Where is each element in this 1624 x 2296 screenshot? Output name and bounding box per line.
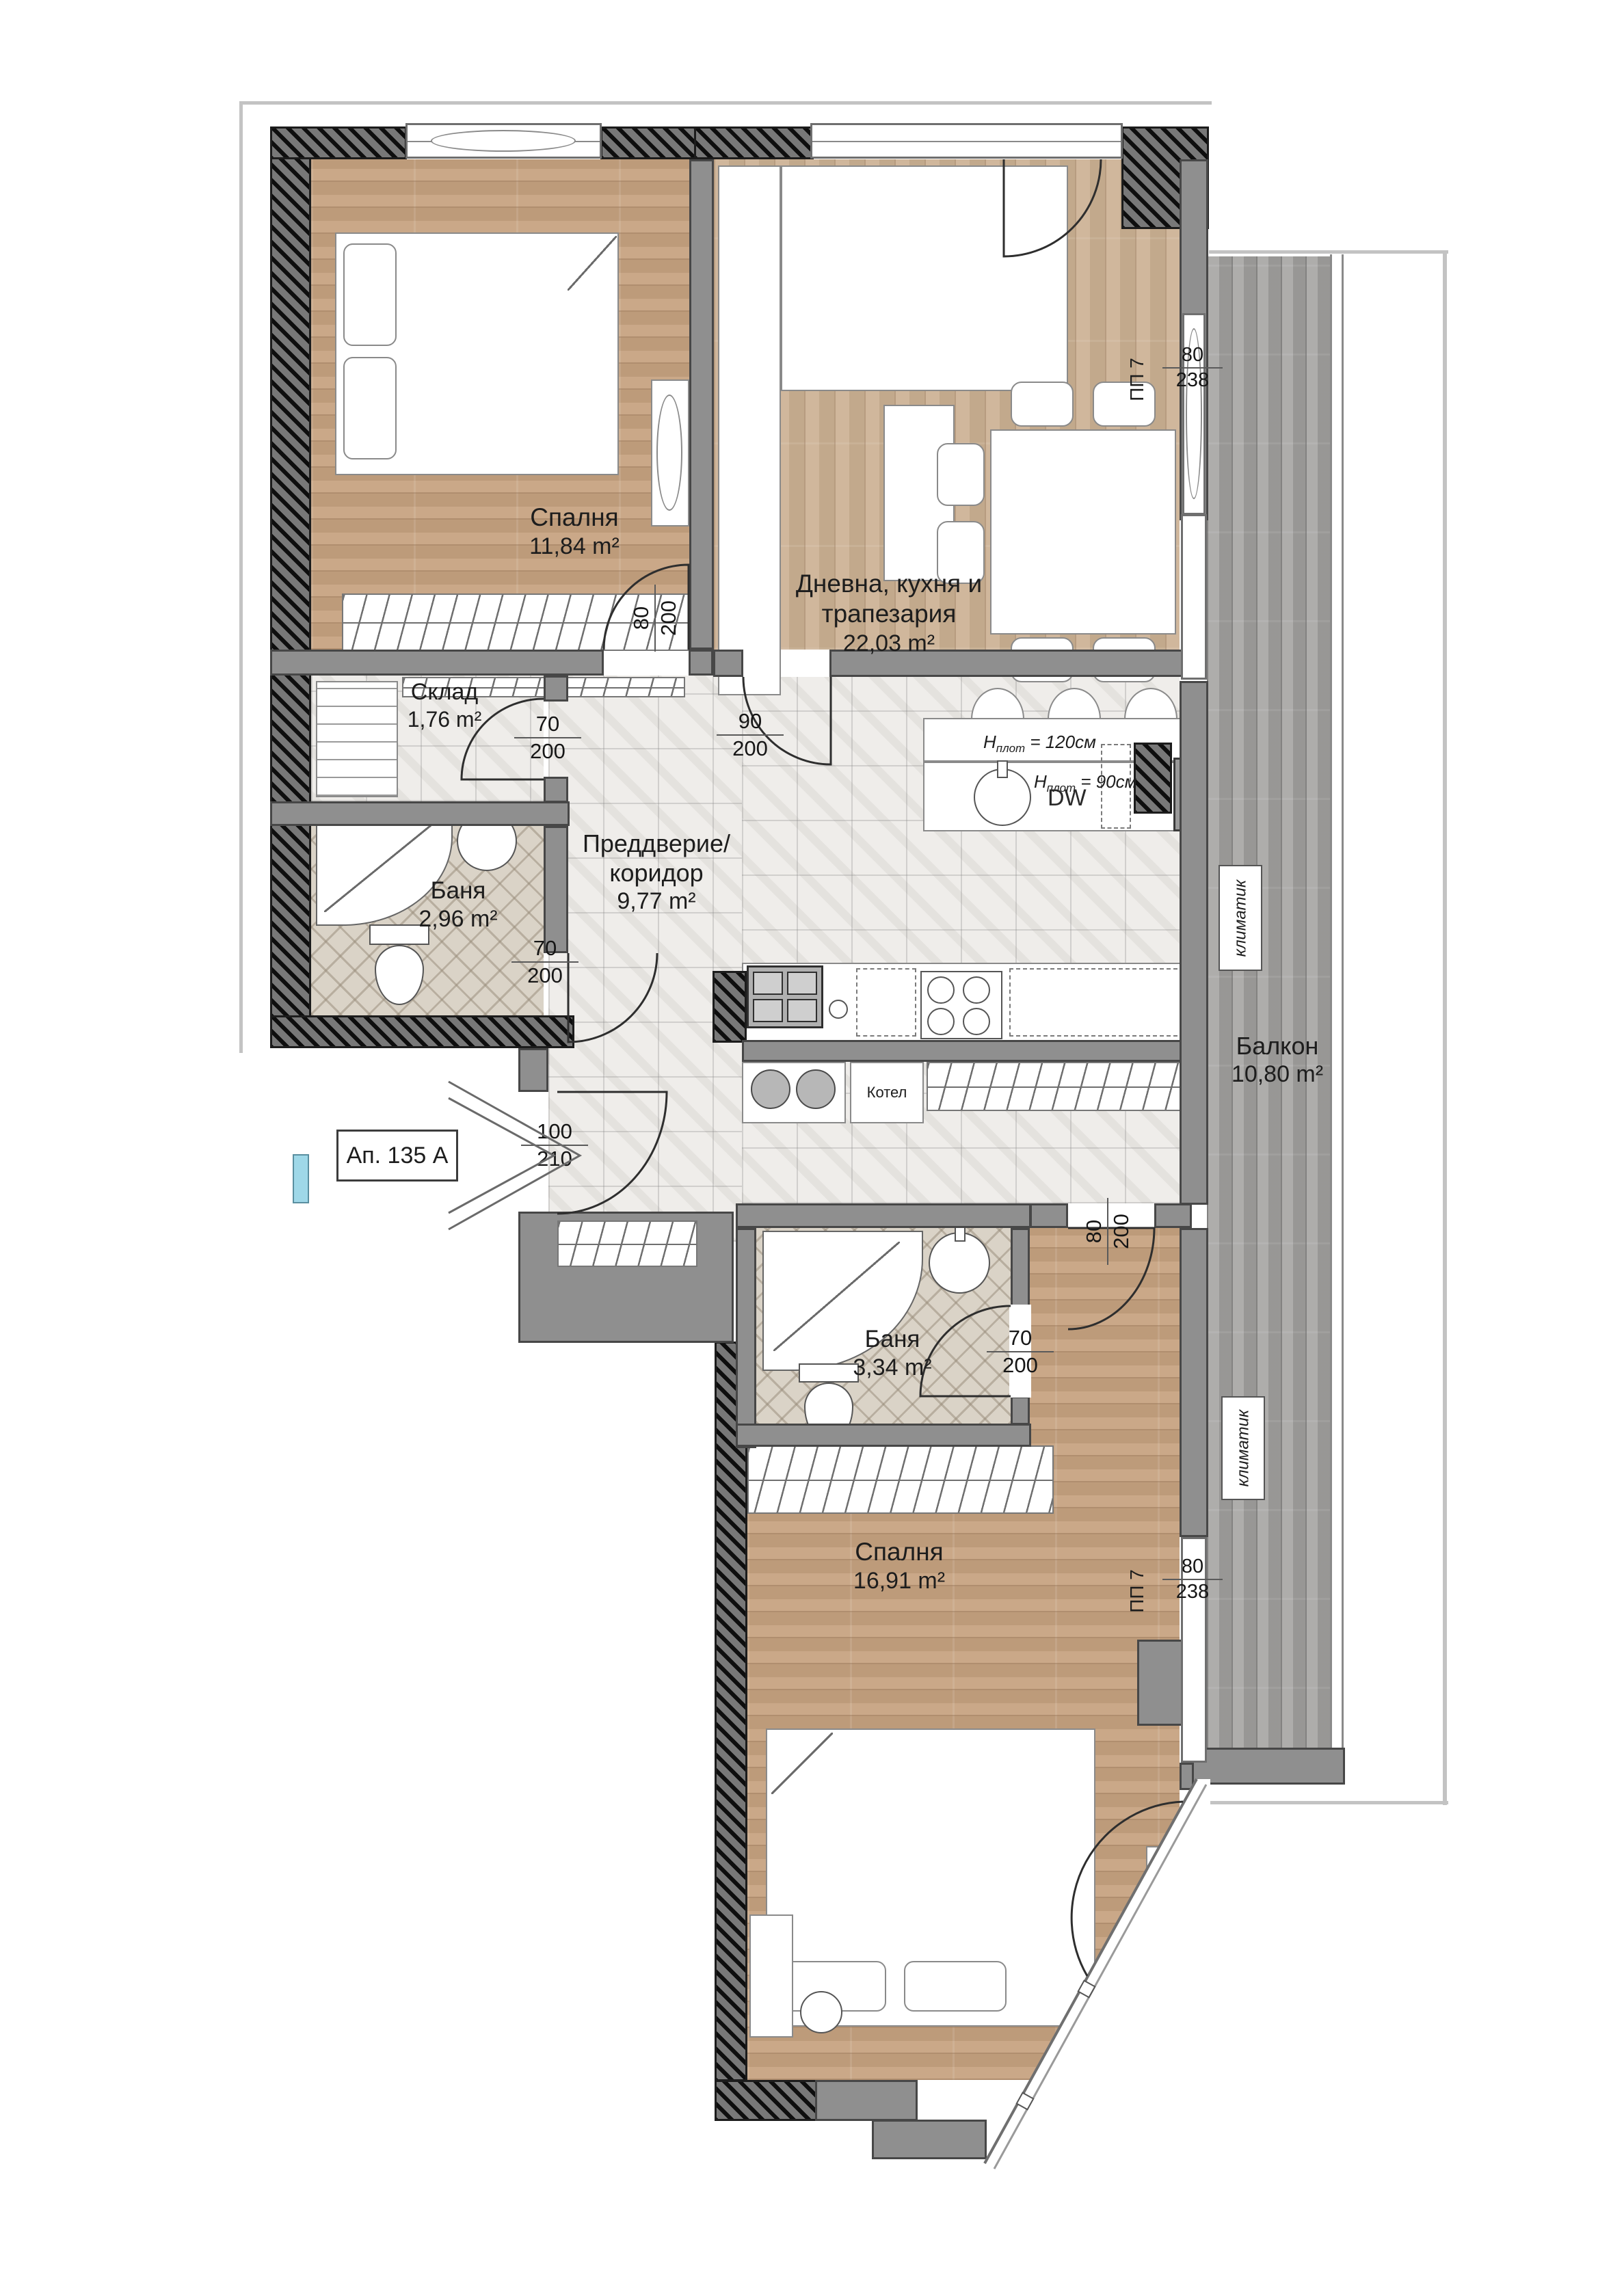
drain-icon bbox=[829, 1000, 848, 1019]
room-label-storage: Склад 1,76 m² bbox=[356, 678, 533, 732]
dim-height: 200 bbox=[515, 963, 575, 989]
wall bbox=[715, 1341, 747, 2081]
dim-height: 200 bbox=[656, 588, 682, 648]
ac-label: климатик bbox=[1231, 879, 1250, 957]
room-area: 9,77 m² bbox=[561, 887, 752, 916]
sink-basin bbox=[787, 999, 817, 1022]
wardrobe-bedroom2 bbox=[747, 1445, 1054, 1514]
cooktop-icon bbox=[920, 971, 1002, 1039]
upper-cabinet bbox=[856, 968, 916, 1037]
wall bbox=[1180, 681, 1208, 1205]
apartment-tag: Ап. 135 А bbox=[336, 1130, 458, 1182]
room-label-hall: Преддверие/ коридор 9,77 m² bbox=[561, 829, 752, 916]
sink-basin bbox=[753, 999, 783, 1022]
dim-height: 200 bbox=[518, 738, 578, 764]
dining-chair bbox=[1011, 382, 1074, 427]
wall bbox=[713, 650, 743, 677]
burner-icon bbox=[927, 1008, 955, 1035]
duct-block bbox=[1134, 743, 1172, 814]
dim-height: 238 bbox=[1166, 369, 1219, 392]
facade-outline-top bbox=[239, 101, 1212, 105]
wall bbox=[872, 2120, 987, 2159]
floorplan-page: { "apartment": { "label": "Ап. 135 А" },… bbox=[0, 0, 1624, 2296]
sink-basin bbox=[787, 972, 817, 995]
wall bbox=[270, 126, 407, 159]
wall bbox=[736, 1203, 1031, 1228]
wall bbox=[544, 777, 568, 803]
room-name: Балкон bbox=[1209, 1031, 1346, 1060]
h-letter: H bbox=[983, 732, 996, 752]
window bbox=[810, 123, 1123, 159]
pillow bbox=[343, 357, 397, 459]
mirror-icon bbox=[656, 395, 682, 511]
washer-icon bbox=[796, 1069, 836, 1109]
dishwasher-label: DW bbox=[1048, 785, 1087, 812]
room-label-bedroom1: Спалня 11,84 m² bbox=[479, 503, 670, 561]
dim-width: 70 bbox=[987, 1325, 1054, 1352]
wall bbox=[713, 971, 747, 1043]
door-dim-living: 90200 bbox=[717, 708, 784, 762]
pillow bbox=[343, 243, 397, 346]
room-name: Баня bbox=[369, 877, 547, 905]
window-pp7-top bbox=[1181, 514, 1207, 680]
room-area: 11,84 m² bbox=[479, 533, 670, 561]
wall bbox=[270, 1015, 574, 1048]
room-area: 1,76 m² bbox=[356, 706, 533, 732]
balcony-outline-bottom bbox=[1209, 1801, 1448, 1804]
dim-height: 200 bbox=[1108, 1201, 1134, 1262]
h-value: = 120см bbox=[1030, 732, 1096, 752]
wall bbox=[1030, 1203, 1068, 1228]
door-dim-storage: 70200 bbox=[514, 711, 581, 764]
room-name: Спалня bbox=[479, 503, 670, 533]
room-area: 3,34 m² bbox=[803, 1354, 981, 1382]
wall bbox=[1192, 1748, 1345, 1785]
room-label-bath2: Баня 3,34 m² bbox=[803, 1325, 981, 1382]
wall bbox=[1180, 1228, 1208, 1537]
kitchen-sink-double-icon bbox=[747, 965, 823, 1028]
stool-icon bbox=[800, 1991, 842, 2033]
door-arc bbox=[568, 953, 657, 1042]
room-label-balcony: Балкон 10,80 m² bbox=[1209, 1031, 1346, 1089]
room-name: Баня bbox=[803, 1325, 981, 1354]
coat-rail-entry bbox=[927, 1062, 1192, 1111]
door-arc bbox=[1004, 159, 1101, 256]
curtain-icon bbox=[431, 130, 576, 152]
apartment-label: Ап. 135 А bbox=[347, 1143, 449, 1169]
facade-outline-left bbox=[239, 101, 243, 1053]
counter-height-120-label: Hплот = 120см bbox=[983, 732, 1096, 756]
blanket-fold bbox=[771, 1733, 833, 1794]
h-sub: плот bbox=[996, 742, 1025, 755]
balcony-outline-top bbox=[1209, 250, 1448, 254]
h-letter: H bbox=[1034, 771, 1047, 792]
wall bbox=[736, 1228, 756, 1448]
wall bbox=[270, 650, 604, 676]
washer-icon bbox=[751, 1069, 790, 1109]
door-dim-bedroom2: 80200 bbox=[1067, 1196, 1148, 1267]
ac-unit: климатик bbox=[1219, 865, 1262, 971]
dim-width: 80 bbox=[628, 585, 656, 652]
room-name: Склад bbox=[356, 678, 533, 706]
dim-height: 200 bbox=[990, 1352, 1050, 1378]
room-area: 10,80 m² bbox=[1209, 1060, 1346, 1089]
blanket-fold bbox=[568, 236, 617, 291]
diagonal-window bbox=[978, 1771, 1210, 2181]
dim-height: 238 bbox=[1166, 1580, 1219, 1604]
dim-width: 70 bbox=[514, 711, 581, 738]
wall bbox=[1011, 1228, 1030, 1307]
wall bbox=[600, 126, 696, 159]
upper-cabinet bbox=[1009, 968, 1184, 1037]
dim-width: 80 bbox=[1081, 1198, 1108, 1265]
wall bbox=[742, 1040, 1192, 1062]
dim-width: 80 bbox=[1162, 343, 1223, 369]
wall bbox=[544, 676, 568, 702]
room-area: 16,91 m² bbox=[803, 1567, 995, 1595]
room-name: коридор bbox=[561, 858, 752, 887]
nightstand bbox=[749, 1914, 793, 2038]
door-dim-bedroom1: 80200 bbox=[615, 580, 695, 656]
wall bbox=[736, 1424, 1031, 1447]
room-name: Спалня bbox=[803, 1537, 995, 1567]
boiler-box: Котел bbox=[850, 1062, 924, 1123]
burner-icon bbox=[963, 1008, 990, 1035]
room-name: трапезария bbox=[745, 599, 1033, 629]
faucet-icon bbox=[997, 760, 1008, 778]
dim-width: 80 bbox=[1162, 1555, 1223, 1580]
sink-basin bbox=[753, 972, 783, 995]
boiler-label: Котел bbox=[867, 1084, 907, 1102]
door-dim-bath2: 70200 bbox=[987, 1325, 1054, 1378]
wall bbox=[694, 126, 814, 159]
window-dim-top: 80238 bbox=[1162, 343, 1223, 393]
room-area: 22,03 m² bbox=[745, 630, 1033, 658]
wall bbox=[689, 159, 714, 650]
ac-unit: климатик bbox=[1221, 1396, 1265, 1500]
wall bbox=[715, 2080, 817, 2121]
ac-label: климатик bbox=[1234, 1410, 1253, 1487]
wall bbox=[270, 801, 570, 826]
wall bbox=[1154, 1203, 1192, 1228]
floor-plan: Hплот = 120см Hплот = 90см DW Котел bbox=[0, 0, 1624, 2296]
entrance-arrow-icon bbox=[443, 1075, 587, 1236]
room-name: Преддверие/ bbox=[561, 829, 752, 858]
balcony-railing bbox=[1330, 254, 1344, 1785]
window-code: ПП 7 bbox=[1126, 1569, 1148, 1613]
room-label-bath1: Баня 2,96 m² bbox=[369, 877, 547, 933]
wall bbox=[1011, 1396, 1030, 1425]
wall bbox=[270, 126, 311, 1048]
wall bbox=[815, 2080, 918, 2121]
room-label-living: Дневна, кухня и трапезария 22,03 m² bbox=[745, 569, 1033, 658]
balcony-floor bbox=[1207, 256, 1330, 1778]
room-label-bedroom2: Спалня 16,91 m² bbox=[803, 1537, 995, 1595]
dim-width: 90 bbox=[717, 708, 784, 736]
balcony-outline-right bbox=[1443, 250, 1447, 1805]
plumbing-shaft bbox=[293, 1154, 309, 1203]
dining-chair bbox=[937, 443, 985, 506]
dim-width: 70 bbox=[511, 935, 578, 963]
door-dim-bath1: 70200 bbox=[511, 935, 578, 989]
room-name: Дневна, кухня и bbox=[745, 569, 1033, 599]
window-code: ПП 7 bbox=[1126, 358, 1148, 401]
h-value: = 90см bbox=[1080, 771, 1136, 792]
dim-height: 200 bbox=[720, 736, 780, 762]
room-area: 2,96 m² bbox=[369, 905, 547, 933]
burner-icon bbox=[963, 976, 990, 1004]
burner-icon bbox=[927, 976, 955, 1004]
window-dim-bottom: 80238 bbox=[1162, 1555, 1223, 1605]
